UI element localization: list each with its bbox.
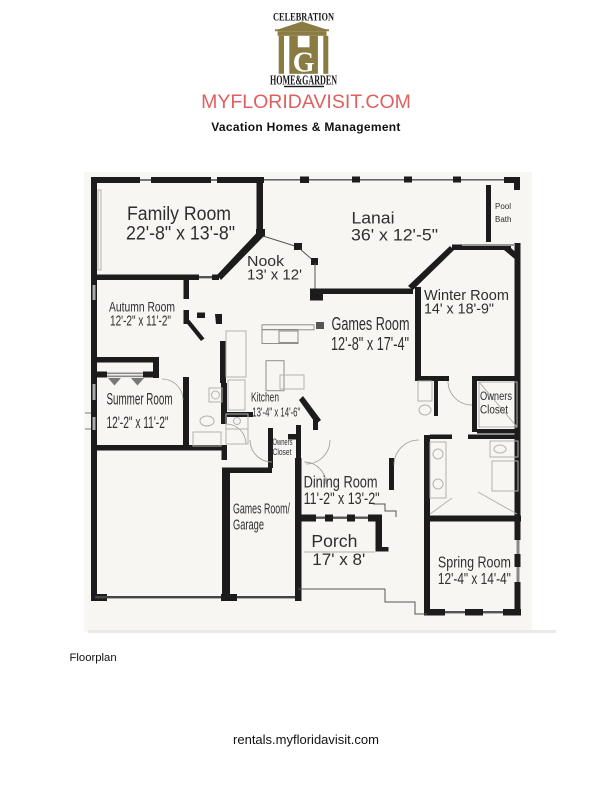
svg-text:13'-4" x 14'-6": 13'-4" x 14'-6" <box>252 406 300 420</box>
svg-text:Lanai: Lanai <box>352 209 395 228</box>
svg-text:12'-2" x 11'-2": 12'-2" x 11'-2" <box>107 413 169 432</box>
svg-text:Spring Room: Spring Room <box>438 555 511 572</box>
svg-text:Kitchen: Kitchen <box>251 390 279 404</box>
svg-text:Closet: Closet <box>273 447 292 458</box>
svg-text:12'-2" x 11'-2": 12'-2" x 11'-2" <box>110 313 171 330</box>
svg-text:36' x 12'-5": 36' x 12'-5" <box>351 227 438 245</box>
svg-text:11'-2" x 13'-2": 11'-2" x 13'-2" <box>304 490 380 508</box>
svg-text:Games Room/: Games Room/ <box>233 501 290 518</box>
svg-text:Garage: Garage <box>233 517 264 534</box>
svg-text:22'-8" x 13'-8": 22'-8" x 13'-8" <box>126 224 235 245</box>
svg-text:12'-8" x 17'-4": 12'-8" x 17'-4" <box>331 334 409 354</box>
svg-text:Summer Room: Summer Room <box>107 391 173 409</box>
svg-text:17' x 8': 17' x 8' <box>312 550 365 569</box>
svg-text:13' x 12': 13' x 12' <box>247 267 302 284</box>
svg-text:Owners: Owners <box>480 391 512 403</box>
svg-text:Family Room: Family Room <box>127 204 231 225</box>
svg-text:Pool: Pool <box>495 202 511 211</box>
svg-text:Dining Room: Dining Room <box>304 473 378 492</box>
svg-text:Porch: Porch <box>311 531 357 551</box>
svg-text:14' x 18'-9": 14' x 18'-9" <box>424 302 494 318</box>
svg-text:12'-4" x 14'-4": 12'-4" x 14'-4" <box>438 571 511 588</box>
svg-text:Games Room: Games Room <box>332 314 410 334</box>
svg-text:Closet: Closet <box>480 405 509 417</box>
svg-text:Bath: Bath <box>495 215 511 224</box>
